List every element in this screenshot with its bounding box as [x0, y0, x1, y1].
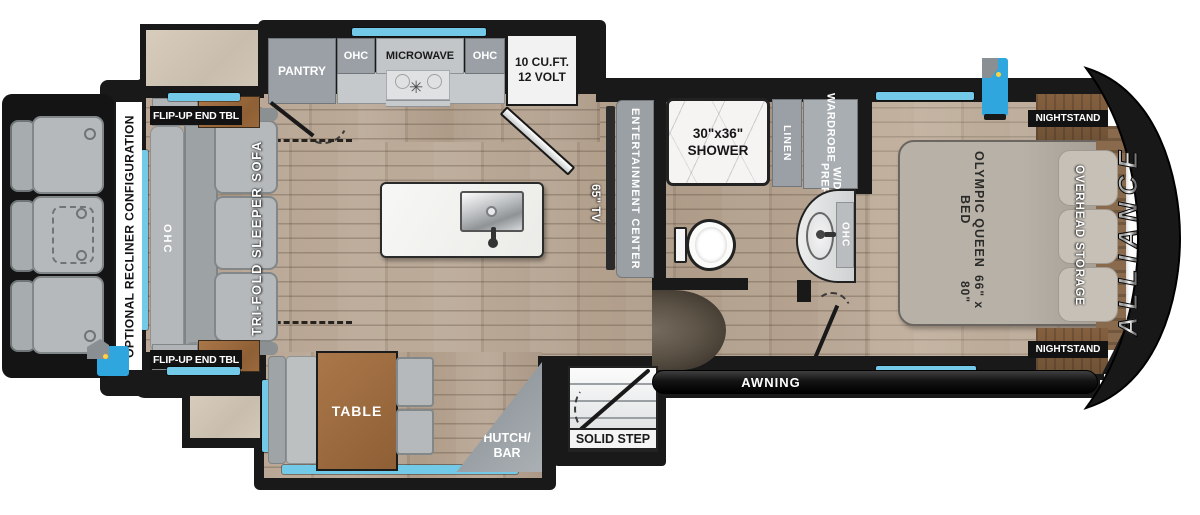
- sofa-cushion: [214, 196, 278, 270]
- flip-up-table-top-label: FLIP-UP END TBL: [150, 106, 242, 125]
- cupholder-icon: [76, 208, 87, 219]
- brand-logo: ALLIANCE: [1112, 125, 1144, 355]
- vanity-faucet-icon: [824, 232, 836, 237]
- sofa-label: TRI-FOLD SLEEPER SOFA: [248, 128, 264, 348]
- dinette-bench-back: [268, 356, 286, 464]
- hutch-bar-label: HUTCH/ BAR: [478, 428, 536, 464]
- tv-label: 65" TV: [588, 158, 604, 248]
- dinette-chair: [396, 409, 434, 455]
- wardrobe-label: WARDROBE W/D PREP: [804, 100, 857, 188]
- recliner-console-outline: [52, 206, 94, 264]
- pantry-cabinet: PANTRY: [268, 38, 336, 104]
- optional-config-label: OPTIONAL RECLINER CONFIGURATION: [121, 97, 138, 377]
- wall-stub-vanity: [797, 280, 811, 302]
- ohc-right-label: OHC: [473, 50, 497, 62]
- pantry-label: PANTRY: [278, 64, 326, 78]
- dinette-table: TABLE: [316, 351, 398, 471]
- sofa-cushion: [214, 272, 278, 342]
- fridge-label-line1: 10 CU.FT.: [515, 55, 569, 70]
- linen-label: LINEN: [773, 100, 801, 186]
- storage-box-bottom: [190, 394, 260, 438]
- fridge-label-line2: 12 VOLT: [518, 70, 566, 85]
- wall-bath-bedroom: [856, 92, 872, 194]
- wall-bath-living: [652, 92, 666, 292]
- hookup-dot-icon: [103, 354, 108, 359]
- entry-door-swing-arc: [574, 386, 604, 432]
- awning-label: AWNING: [731, 371, 811, 393]
- linen-cabinet: LINEN: [772, 99, 802, 187]
- exterior-hookup-base: [984, 114, 1006, 120]
- recliner-seat: [32, 276, 104, 354]
- sofa-ohc-cabinet: OHC: [150, 126, 184, 352]
- ohc-left-cabinet: OHC: [337, 38, 375, 74]
- toilet-bowl-inner: [695, 227, 727, 263]
- awning-bar: AWNING: [652, 370, 1098, 394]
- burner-icon: [427, 74, 442, 89]
- dinette-chair: [396, 357, 434, 407]
- solid-step-label: SOLID STEP: [568, 428, 658, 450]
- cupholder-icon: [84, 330, 96, 342]
- burner-icon: [395, 74, 410, 89]
- entertainment-center-cabinet: ENTERTAINMENT CENTER: [616, 100, 654, 278]
- cupholder-icon: [76, 250, 87, 261]
- dinette-bench-seat: [286, 356, 318, 464]
- bed-label: OLYMPIC QUEEN BED 66" x 80": [948, 150, 996, 316]
- shower-label: SHOWER: [688, 142, 749, 159]
- window: [141, 150, 148, 330]
- stove-drawer: [386, 100, 450, 107]
- sofa-cushion: [214, 120, 278, 194]
- exterior-hookup-icon: [982, 58, 1008, 116]
- vanity-ohc-cabinet: OHC: [836, 202, 854, 268]
- vanity-faucet-knob-icon: [816, 230, 825, 239]
- burner-flame-icon: ✳: [409, 79, 423, 96]
- window: [352, 28, 486, 36]
- sink-faucet-knob-icon: [488, 238, 498, 248]
- shower: 30"x36" SHOWER: [666, 98, 770, 186]
- sink-drain-icon: [486, 206, 497, 217]
- recliner-seat: [32, 116, 104, 194]
- stove: ✳: [386, 70, 450, 100]
- sofa-backrest: [184, 116, 218, 356]
- refrigerator: 10 CU.FT. 12 VOLT: [506, 34, 578, 106]
- window: [876, 92, 974, 100]
- shower-size-label: 30"x36": [693, 125, 743, 142]
- wardrobe-wd-prep: WARDROBE W/D PREP: [803, 99, 858, 189]
- hookup-dot-icon: [996, 72, 1001, 77]
- entertainment-center-label: ENTERTAINMENT CENTER: [617, 101, 653, 277]
- rv-floorplan: PANTRY OHC MICROWAVE OHC ✳ 10 CU.FT. 12 …: [0, 0, 1200, 515]
- vanity-ohc-label: OHC: [837, 203, 853, 267]
- tv: [606, 106, 615, 270]
- microwave-label: MICROWAVE: [386, 50, 454, 62]
- microwave: MICROWAVE: [376, 38, 464, 74]
- cupholder-icon: [84, 128, 96, 140]
- window: [168, 93, 240, 101]
- sofa-ohc-label: OHC: [151, 127, 183, 351]
- ohc-right-cabinet: OHC: [465, 38, 505, 74]
- wall-half-bath: [656, 278, 748, 290]
- window: [167, 367, 240, 375]
- exterior-hookup-icon: [97, 346, 129, 376]
- ohc-left-label: OHC: [344, 50, 368, 62]
